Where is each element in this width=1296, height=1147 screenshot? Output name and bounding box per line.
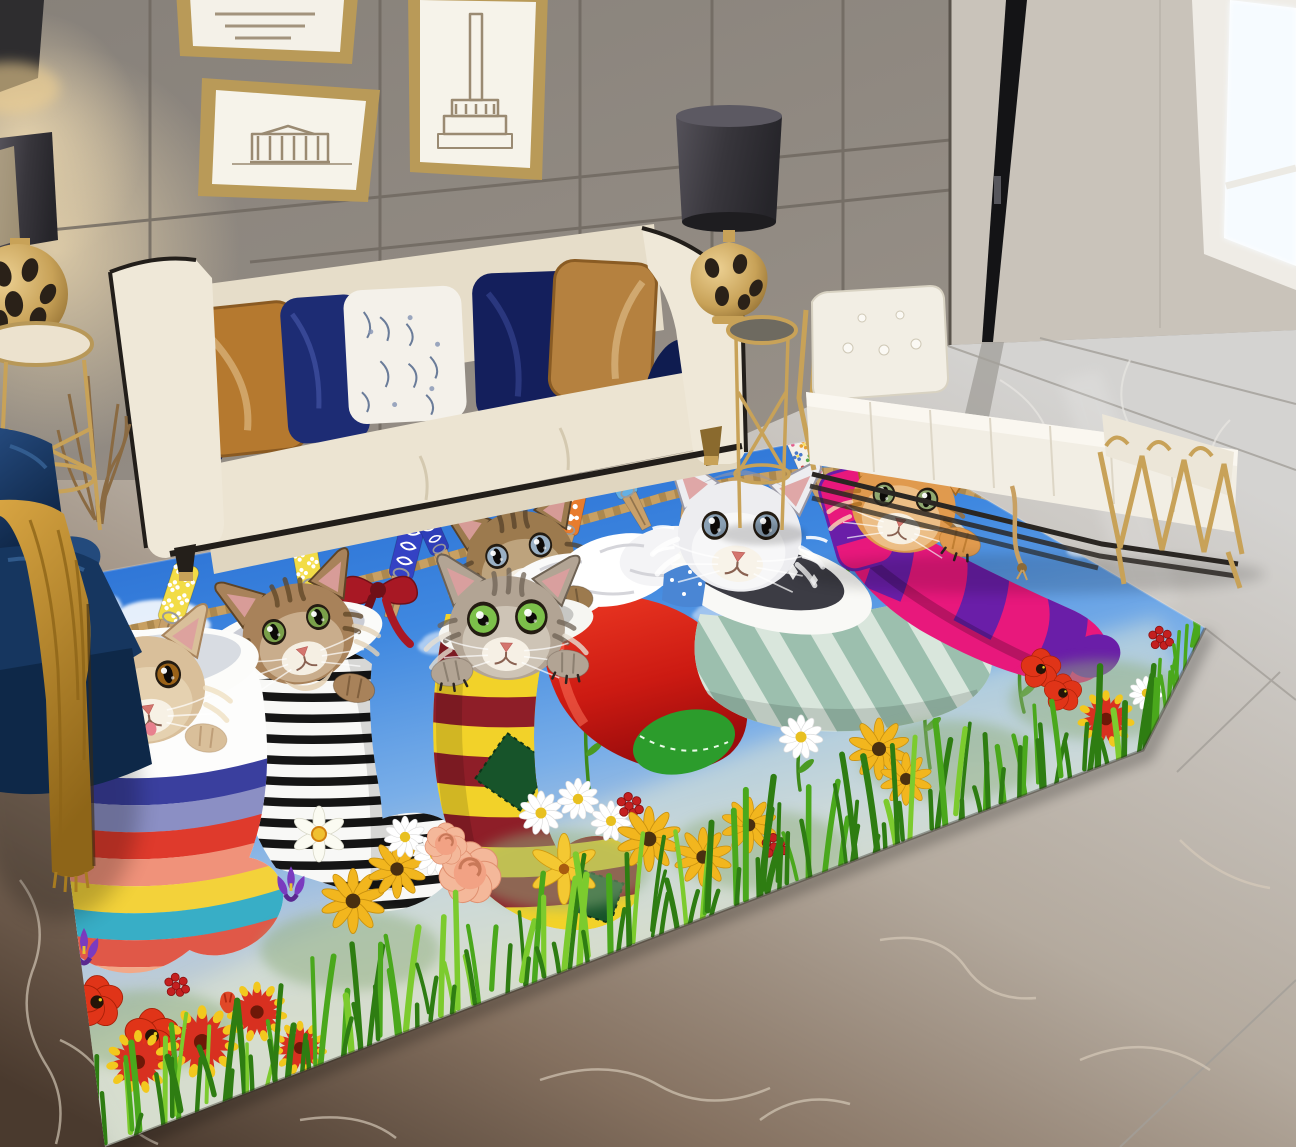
living-room-photo <box>0 0 1296 1147</box>
pillow-floral-white <box>343 285 468 425</box>
table-shadow <box>718 523 806 545</box>
lamp-shade-right <box>676 116 782 222</box>
scene-canvas <box>0 0 1296 1147</box>
bench-back-cushion <box>812 286 948 400</box>
window-glow <box>1224 0 1296 266</box>
frame-top-left <box>176 0 358 64</box>
window <box>1192 0 1296 290</box>
frame-column-sketch <box>408 0 548 180</box>
frame-brandenburg-sketch <box>198 78 380 202</box>
dark-strip-highlight <box>994 176 1001 204</box>
